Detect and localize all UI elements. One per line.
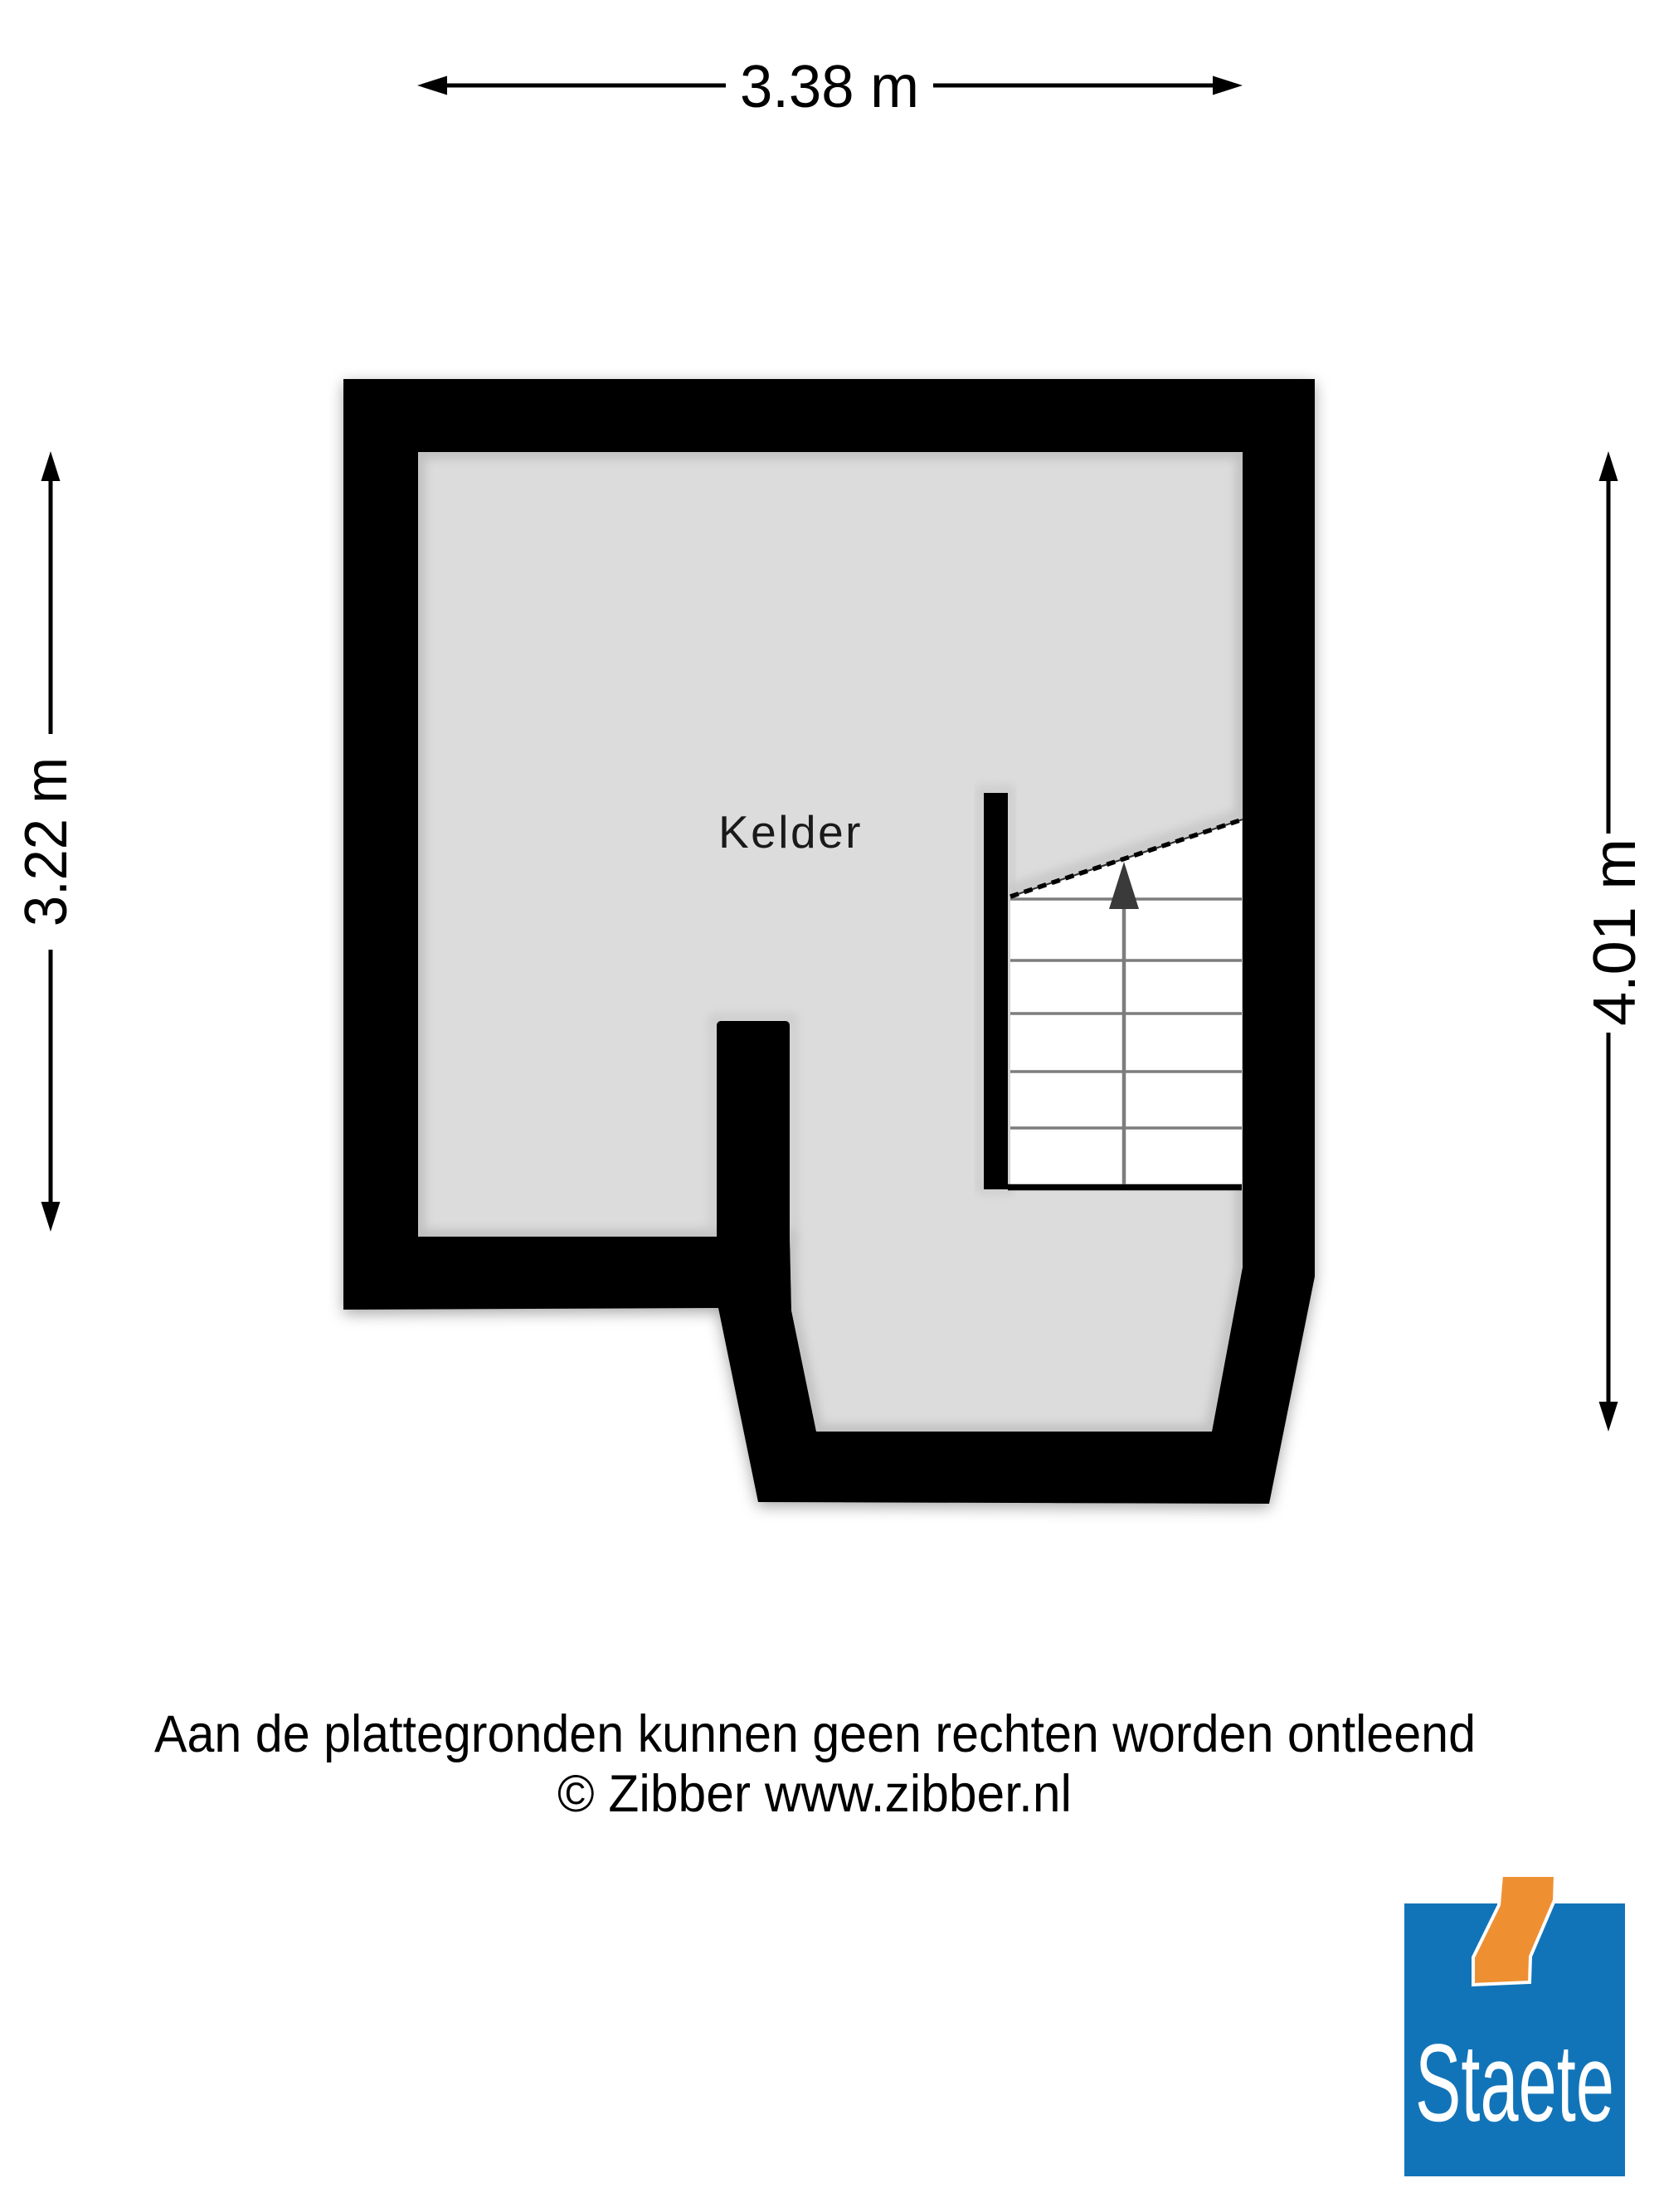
svg-text:© Zibber www.zibber.nl: © Zibber www.zibber.nl bbox=[557, 1765, 1072, 1823]
svg-text:Staete: Staete bbox=[1415, 2022, 1614, 2145]
svg-text:3.38 m: 3.38 m bbox=[740, 54, 919, 120]
svg-text:Aan de plattegronden kunnen ge: Aan de plattegronden kunnen geen rechten… bbox=[154, 1705, 1476, 1763]
svg-text:Kelder: Kelder bbox=[718, 806, 863, 858]
svg-text:3.22 m: 3.22 m bbox=[13, 757, 80, 926]
svg-text:4.01 m: 4.01 m bbox=[1582, 839, 1648, 1026]
